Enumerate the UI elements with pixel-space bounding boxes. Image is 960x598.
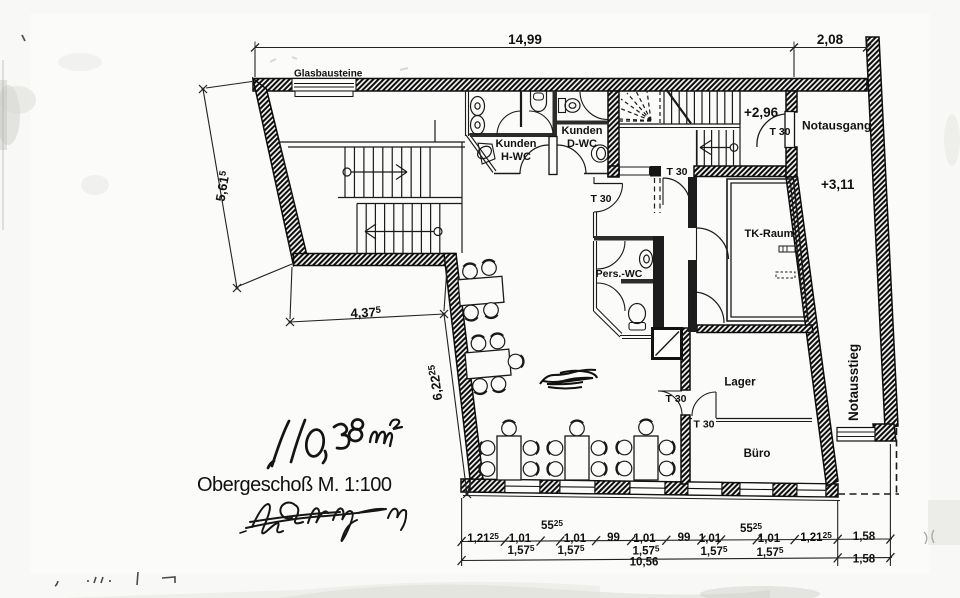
svg-text:1,58: 1,58 <box>853 554 876 566</box>
svg-text:Notausgang: Notausgang <box>802 119 871 133</box>
svg-text:T 30: T 30 <box>769 126 790 138</box>
svg-text:TK-Raum: TK-Raum <box>745 228 794 240</box>
svg-text:Kunden: Kunden <box>562 125 603 137</box>
svg-text:99: 99 <box>678 532 691 544</box>
svg-text:Pers.-WC: Pers.-WC <box>596 268 643 280</box>
svg-text:Lager: Lager <box>724 377 756 389</box>
svg-text:1,01: 1,01 <box>758 533 781 545</box>
svg-text:1,01: 1,01 <box>699 533 722 545</box>
svg-text:10,56: 10,56 <box>630 557 659 569</box>
svg-text:H-WC: H-WC <box>501 151 531 163</box>
svg-text:99: 99 <box>607 532 620 544</box>
svg-text:T 30: T 30 <box>693 419 714 431</box>
svg-text:1,58: 1,58 <box>853 531 876 543</box>
svg-text:2,08: 2,08 <box>817 32 844 47</box>
svg-text:+2,96: +2,96 <box>744 105 779 120</box>
svg-text:Notausstieg: Notausstieg <box>846 344 861 421</box>
svg-text:Obergeschoß M. 1:100: Obergeschoß M. 1:100 <box>197 474 392 496</box>
svg-text:+3,11: +3,11 <box>821 177 855 192</box>
svg-text:T 30: T 30 <box>666 166 687 178</box>
svg-text:D-WC: D-WC <box>567 138 597 150</box>
svg-text:14,99: 14,99 <box>508 32 542 47</box>
svg-text:Glasbausteine: Glasbausteine <box>294 69 363 80</box>
svg-text:Kunden: Kunden <box>496 138 537 150</box>
svg-text:T 30: T 30 <box>665 393 686 405</box>
svg-text:1,01: 1,01 <box>509 533 532 545</box>
svg-text:Büro: Büro <box>744 448 771 460</box>
svg-text:1,01: 1,01 <box>633 533 656 545</box>
svg-text:T 30: T 30 <box>590 193 611 205</box>
